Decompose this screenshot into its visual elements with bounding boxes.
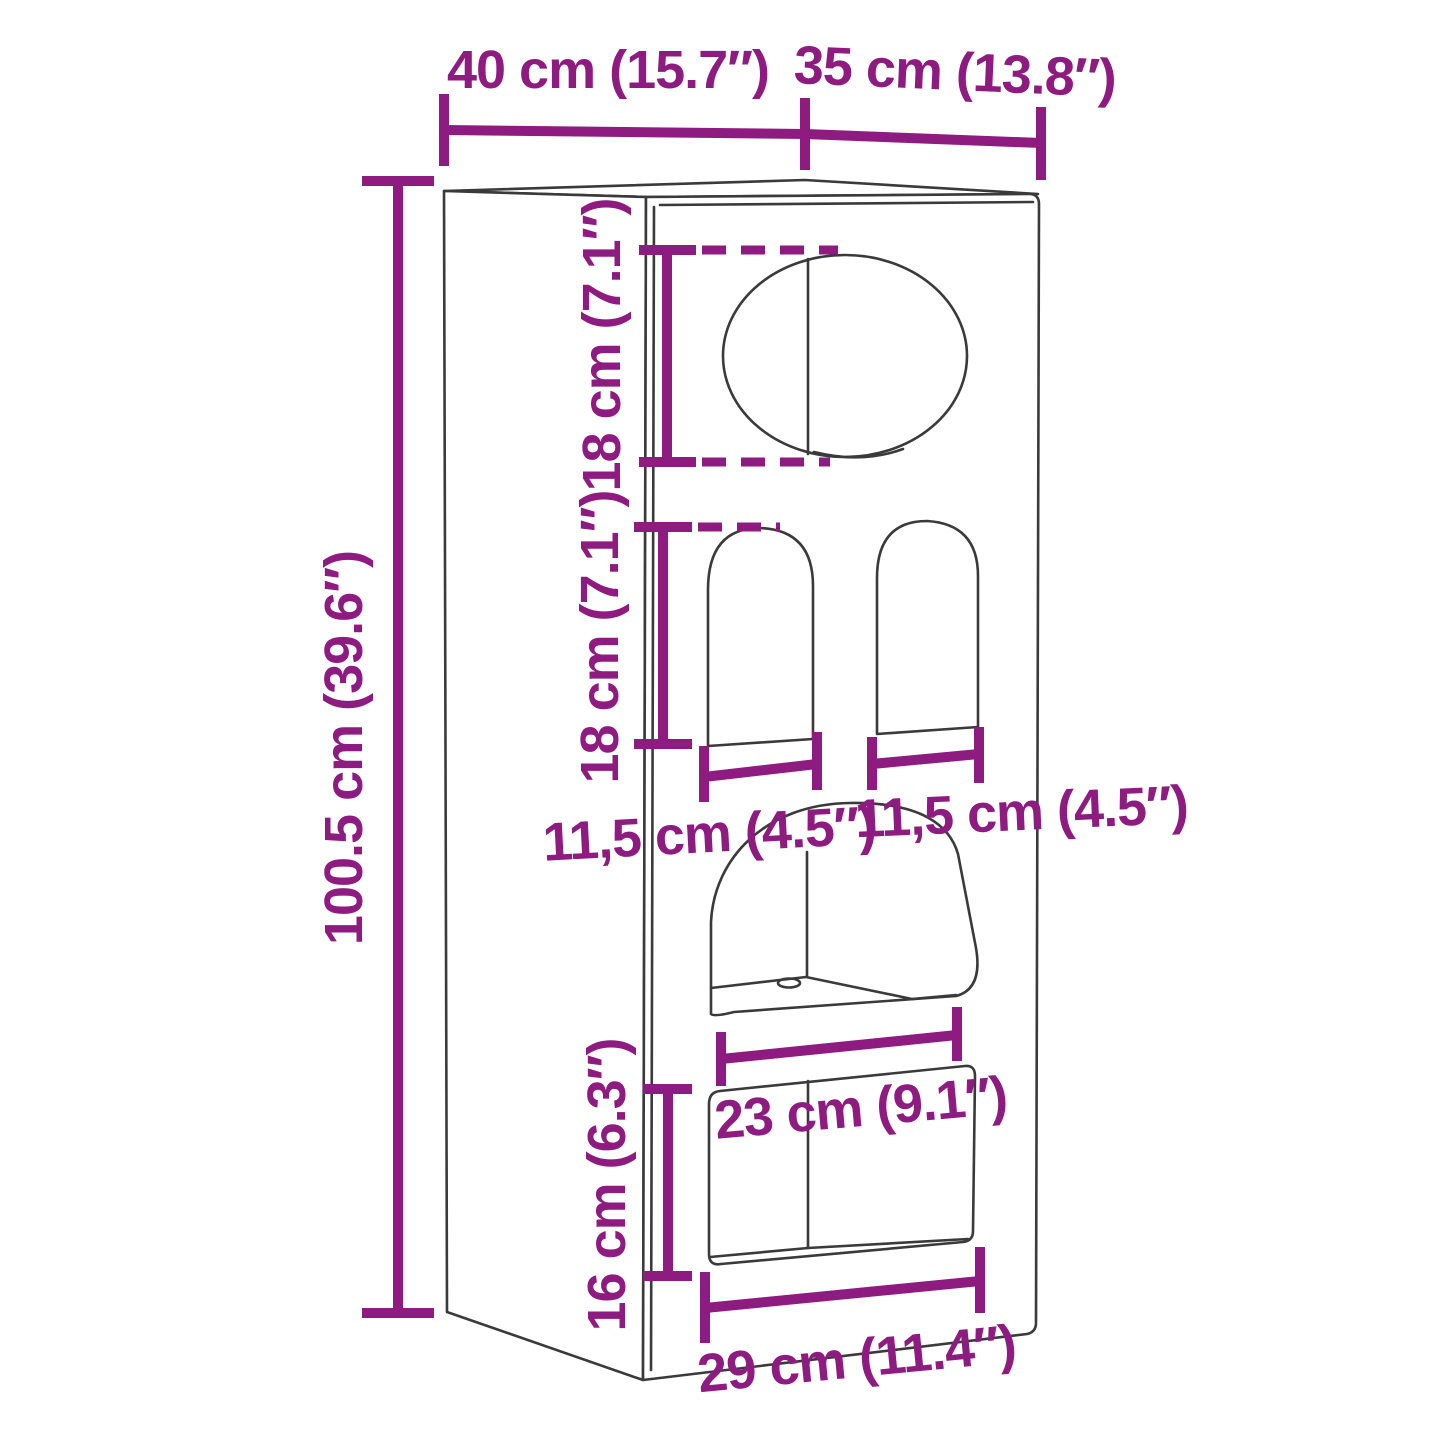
dim-top-width <box>444 94 1041 180</box>
ellipse-opening <box>723 255 967 457</box>
dim-label-bottom-height: 16 cm (6.3″) <box>577 1038 637 1331</box>
dimension-diagram: 40 cm (15.7″) 35 cm (13.8″) 100.5 cm (39… <box>0 0 1445 1445</box>
arch-opening-right <box>877 521 978 734</box>
dim-label-top-depth: 35 cm (13.8″) <box>793 35 1117 109</box>
dim-label-ellipse-height: 18 cm (7.1″) <box>572 198 632 491</box>
arch-opening-left <box>708 528 813 746</box>
dim-label-top-width: 40 cm (15.7″) <box>447 40 769 100</box>
cabinet-dimension-drawing: 40 cm (15.7″) 35 cm (13.8″) 100.5 cm (39… <box>0 0 1445 1445</box>
dim-label-arch-height: 18 cm (7.1″) <box>570 490 630 783</box>
dim-label-overall-height: 100.5 cm (39.6″) <box>314 551 374 945</box>
